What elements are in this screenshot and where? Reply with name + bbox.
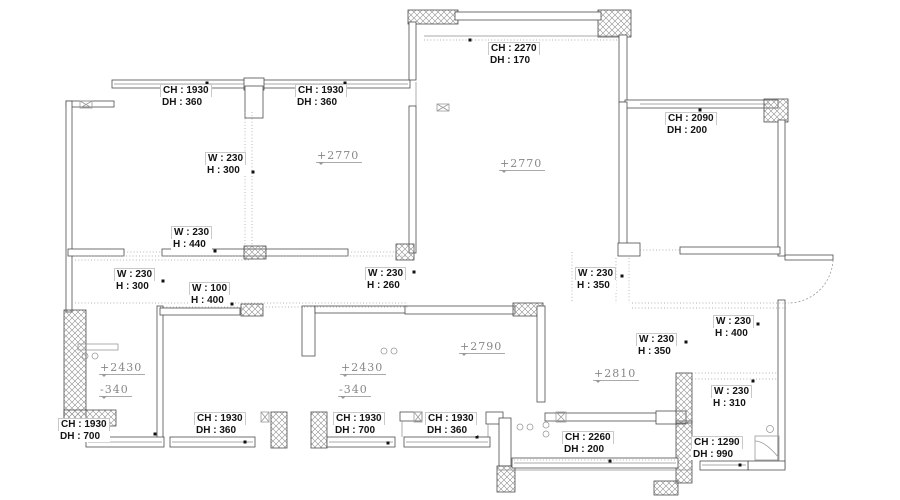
- window-dim-label: CH : 1930DH : 700: [333, 412, 385, 436]
- floor-plan: CH : 1930DH : 360 CH : 1930DH : 360 CH :…: [0, 0, 900, 500]
- beam-dim-label: W : 230H : 300: [205, 152, 246, 176]
- interior-walls: [64, 244, 785, 495]
- window-dim-label: CH : 1930DH : 360: [160, 84, 212, 108]
- windows: [86, 437, 748, 470]
- window-dim-label: CH : 1290DH : 990: [691, 436, 743, 460]
- floor-level-label: +2430: [99, 362, 145, 375]
- beam-dim-label: W : 230H : 260: [365, 267, 406, 291]
- beam-dim-label: W : 230H : 350: [575, 267, 616, 291]
- beam-dim-label: W : 100H : 400: [189, 282, 230, 306]
- beam-dim-label: W : 230H : 440: [171, 226, 212, 250]
- window-dim-label: CH : 2270DH : 170: [488, 42, 540, 66]
- floor-level-label: +2790: [459, 341, 505, 354]
- floor-level-label: +2810: [593, 368, 639, 381]
- beam-dim-label: W : 230H : 350: [636, 333, 677, 357]
- window-dim-label: CH : 1930DH : 360: [295, 84, 347, 108]
- floor-level-label: +2770: [316, 150, 362, 163]
- window-dim-label: CH : 2260DH : 200: [562, 431, 614, 455]
- floor-level-label: +2430: [340, 362, 386, 375]
- floor-level-label: -340: [99, 384, 132, 397]
- beam-dim-label: W : 230H : 300: [114, 268, 155, 292]
- window-dim-label: CH : 1930DH : 360: [194, 412, 246, 436]
- beam-dim-label: W : 230H : 400: [713, 315, 754, 339]
- floor-level-label: -340: [338, 384, 371, 397]
- window-dim-label: CH : 1930DH : 700: [58, 418, 110, 442]
- window-dim-label: CH : 1930DH : 360: [425, 412, 477, 436]
- window-dim-label: CH : 2090DH : 200: [665, 112, 717, 136]
- floor-level-label: +2770: [499, 158, 545, 171]
- beam-dim-label: W : 230H : 310: [711, 385, 752, 409]
